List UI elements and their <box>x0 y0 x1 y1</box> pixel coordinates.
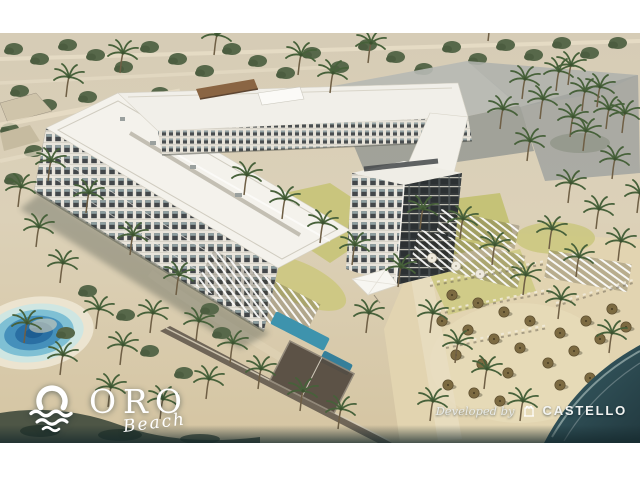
tower-facade-light <box>346 173 404 285</box>
developer-credit: Developed by CASTELLO <box>436 403 627 418</box>
sun-over-waves-icon <box>26 382 78 434</box>
developer-name: CASTELLO <box>543 403 627 418</box>
project-logo: ORO Beach <box>26 382 189 434</box>
poster-frame: ORO Beach Developed by CASTELLO <box>0 0 640 480</box>
developer-prefix: Developed by <box>436 404 515 418</box>
project-tagline: Beach <box>122 411 190 436</box>
castle-crest-icon <box>522 404 536 418</box>
